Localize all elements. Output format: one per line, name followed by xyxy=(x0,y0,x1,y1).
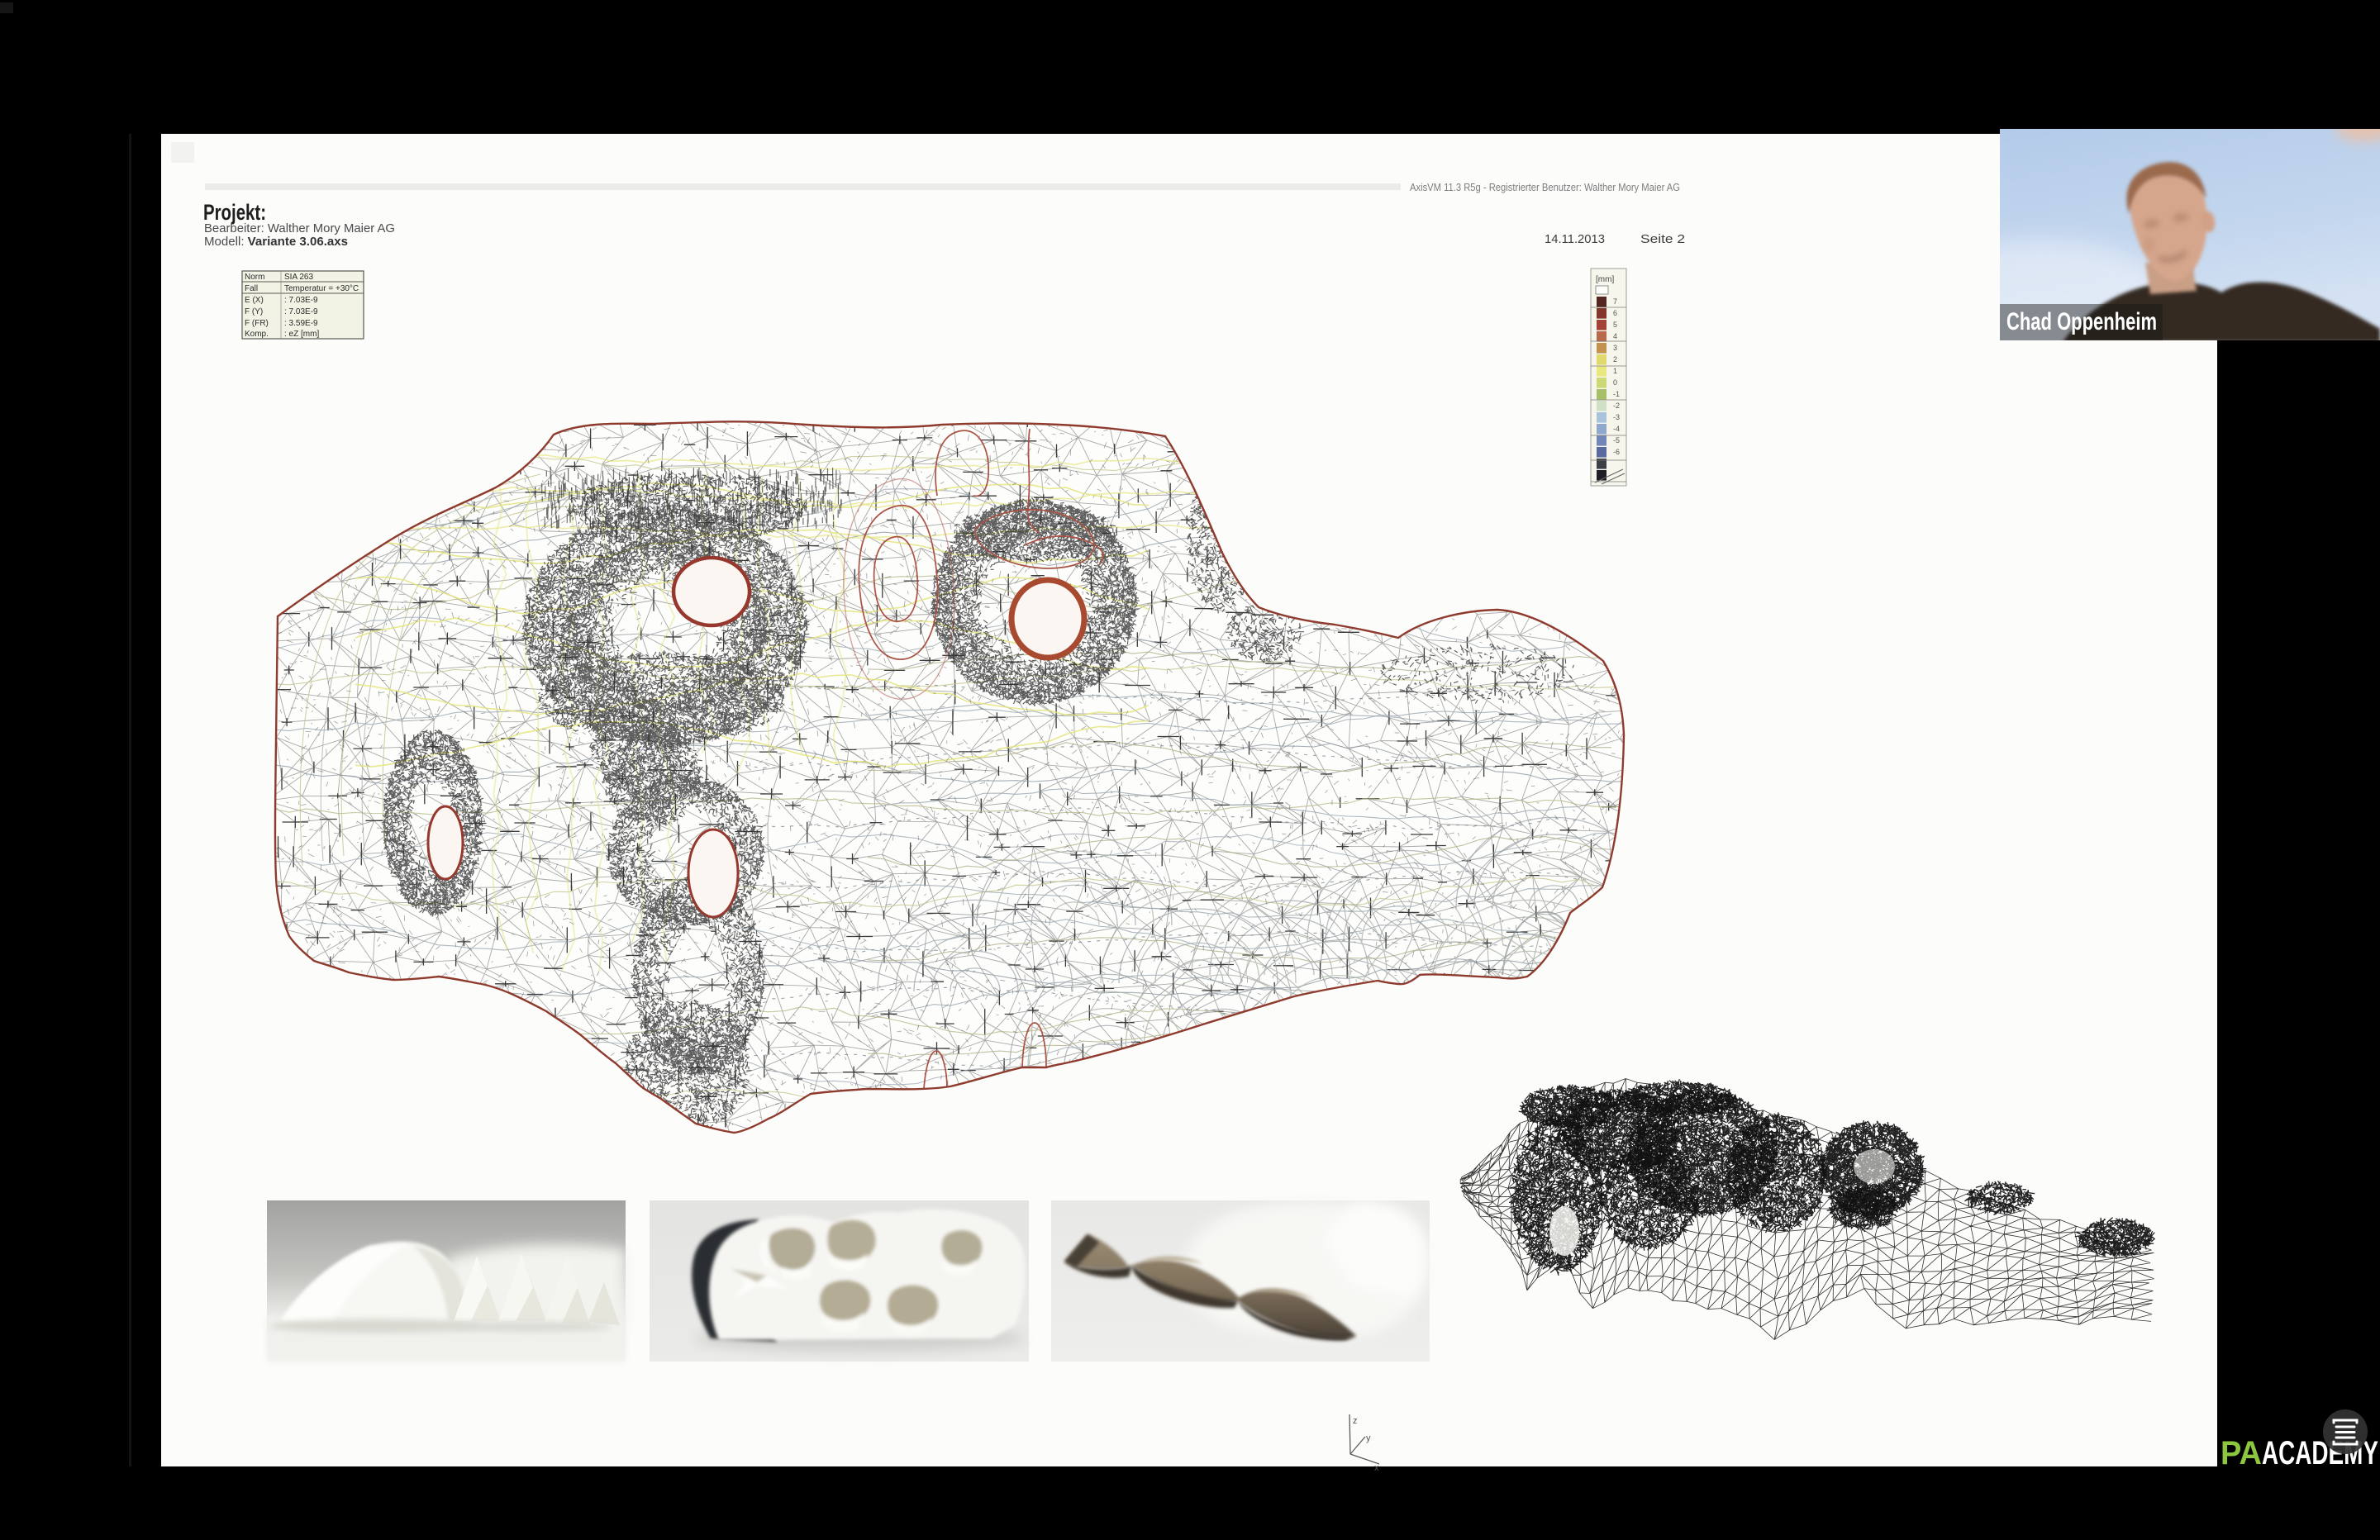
svg-text:14.11.2013: 14.11.2013 xyxy=(1545,232,1605,246)
svg-text:: 3.59E-9: : 3.59E-9 xyxy=(284,319,318,328)
svg-text:x: x xyxy=(1374,1463,1379,1473)
svg-text:Chad Oppenheim: Chad Oppenheim xyxy=(2006,308,2157,335)
svg-text:Seite 2: Seite 2 xyxy=(1640,232,1685,246)
svg-text:SIA 263: SIA 263 xyxy=(284,273,313,282)
svg-text:5: 5 xyxy=(1613,321,1617,329)
svg-text:-2: -2 xyxy=(1613,402,1620,410)
svg-text:2: 2 xyxy=(1613,355,1617,364)
svg-text:AxisVM 11.3 R5g - Registrierte: AxisVM 11.3 R5g - Registrierter Benutzer… xyxy=(1410,181,1680,193)
svg-text:: 7.03E-9: : 7.03E-9 xyxy=(284,296,318,305)
svg-text:Norm: Norm xyxy=(245,273,264,282)
svg-text:z: z xyxy=(1353,1416,1358,1426)
svg-text:-3: -3 xyxy=(1613,413,1620,421)
svg-text:3: 3 xyxy=(1613,344,1617,352)
svg-text:y: y xyxy=(1366,1433,1371,1443)
svg-text:7: 7 xyxy=(1613,297,1617,306)
svg-text:PA: PA xyxy=(2221,1435,2262,1471)
svg-text:-5: -5 xyxy=(1613,436,1620,444)
svg-text:1: 1 xyxy=(1613,367,1617,375)
svg-text:Komp.: Komp. xyxy=(245,330,269,339)
svg-text:4: 4 xyxy=(1613,332,1617,340)
svg-text:F (Y): F (Y) xyxy=(245,307,263,316)
svg-text:Temperatur = +30°C: Temperatur = +30°C xyxy=(284,284,359,293)
svg-text:: 7.03E-9: : 7.03E-9 xyxy=(284,307,318,316)
svg-text:Modell: Variante 3.06.axs: Modell: Variante 3.06.axs xyxy=(204,235,348,249)
svg-text:Bearbeiter: Walther Mory Maier: Bearbeiter: Walther Mory Maier AG xyxy=(204,221,395,235)
svg-text:: eZ [mm]: : eZ [mm] xyxy=(284,330,319,339)
svg-text:Fall: Fall xyxy=(245,284,258,293)
svg-text:-1: -1 xyxy=(1613,390,1620,398)
svg-text:-4: -4 xyxy=(1613,425,1620,433)
svg-text:F (FR): F (FR) xyxy=(245,319,269,328)
svg-text:E (X): E (X) xyxy=(245,296,264,305)
svg-text:0: 0 xyxy=(1613,378,1617,387)
svg-text:[mm]: [mm] xyxy=(1596,275,1614,284)
svg-text:-6: -6 xyxy=(1613,448,1620,456)
svg-text:6: 6 xyxy=(1613,309,1617,317)
